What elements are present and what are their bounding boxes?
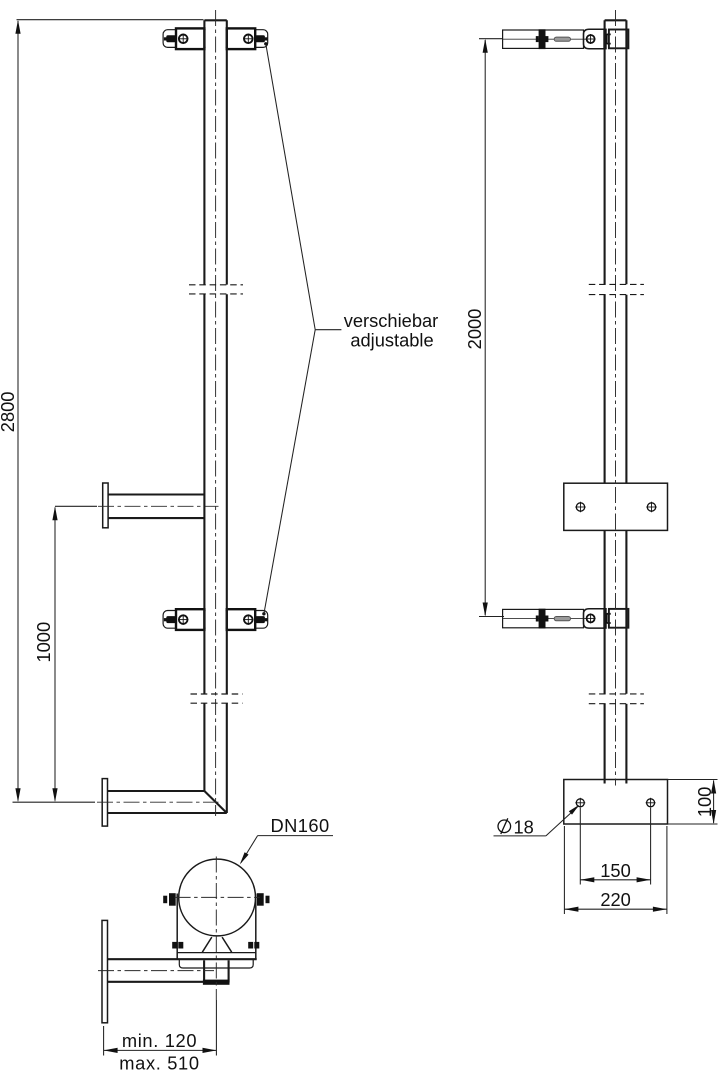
svg-text:220: 220 xyxy=(600,889,631,910)
svg-text:100: 100 xyxy=(694,787,715,818)
svg-text:2000: 2000 xyxy=(464,309,485,350)
svg-text:DN160: DN160 xyxy=(271,815,330,836)
svg-text:max. 510: max. 510 xyxy=(119,1053,199,1074)
svg-text:18: 18 xyxy=(514,816,534,837)
svg-text:150: 150 xyxy=(600,860,631,881)
svg-text:adjustable: adjustable xyxy=(350,329,433,350)
svg-text:1000: 1000 xyxy=(33,622,54,663)
svg-text:min. 120: min. 120 xyxy=(122,1030,197,1051)
svg-text:verschiebar: verschiebar xyxy=(344,310,439,331)
svg-text:2800: 2800 xyxy=(0,392,18,433)
